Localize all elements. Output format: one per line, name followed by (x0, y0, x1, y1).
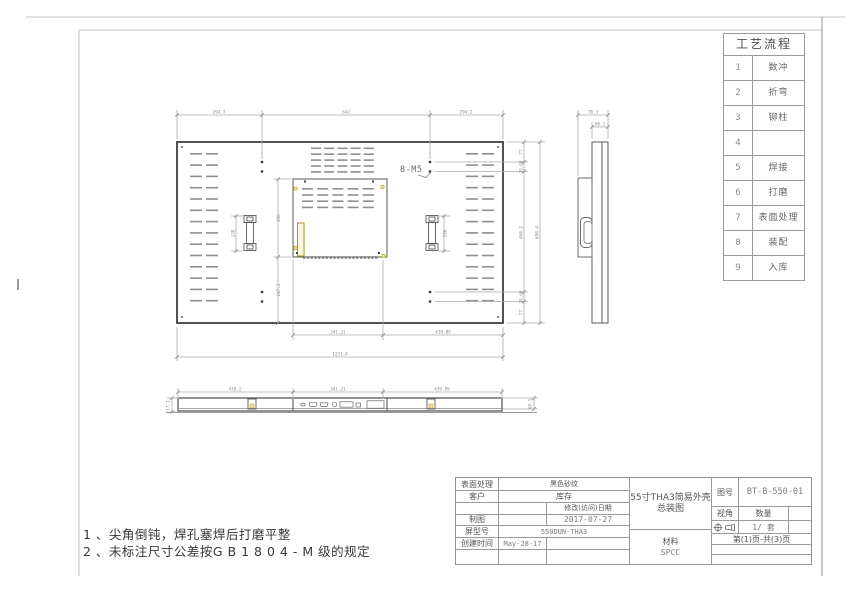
dim-label: 247.2 (276, 283, 282, 296)
process-step-number: 6 (724, 181, 753, 205)
process-step-row: 6打磨 (724, 181, 804, 206)
process-step-name: 打磨 (753, 181, 804, 205)
empty-cell (498, 514, 546, 526)
title-block: 表面处理 黑色砂纹 客户 库存 修改(访问)日期 制图 2017-07-27 屏… (455, 477, 812, 565)
dim-label: 250 (276, 214, 282, 222)
dim-label: 439.89 (434, 387, 450, 393)
handle-bracket-left (244, 216, 256, 251)
dim-label: 77 (519, 310, 525, 316)
process-step-name: 装配 (753, 231, 804, 255)
process-step-row: 8装配 (724, 231, 804, 256)
dim-label: 698.4 (535, 226, 541, 239)
process-step-number: 3 (724, 106, 753, 130)
material-value: SPCC (661, 547, 680, 558)
create-time-label: 创建时间 (456, 537, 498, 549)
process-step-row: 7表面处理 (724, 206, 804, 231)
process-step-row: 1数冲 (724, 56, 804, 81)
process-step-number: 2 (724, 81, 753, 105)
process-step-number: 1 (724, 56, 753, 80)
empty-cell (711, 554, 811, 564)
note-2: 2 、未标注尺寸公差按G B 1 8 0 4 - M 级的规定 (83, 543, 370, 560)
empty-cell (456, 549, 498, 564)
model-label: 屏型号 (456, 525, 498, 537)
dim-label: 39.68 (519, 290, 525, 303)
process-step-name: 数冲 (753, 56, 804, 80)
drawing-title-line1: 55寸THA3简易外壳 (630, 493, 711, 504)
dim-label: 341.21 (330, 330, 346, 336)
dim-label: 294.2 (460, 110, 473, 116)
empty-cell (498, 502, 546, 514)
dim-label: 439.89 (435, 330, 451, 336)
modify-date-label: 修改(访问)日期 (546, 502, 629, 514)
process-step-number: 4 (724, 131, 753, 155)
empty-cell (546, 537, 629, 549)
process-step-row: 5焊接 (724, 156, 804, 181)
m5-holes (261, 161, 431, 303)
process-flow-title: 工艺流程 (724, 34, 804, 56)
process-step-number: 7 (724, 206, 753, 230)
rear-view (177, 142, 503, 323)
empty-cell (498, 549, 546, 564)
dimension-labels: 294.7 642 294.2 341.21 439.89 1231.4 77 … (166, 110, 606, 411)
bottom-view (166, 398, 537, 413)
dim-label: 341.21 (330, 387, 346, 393)
process-step-row: 4 (724, 131, 804, 156)
model-value: 550DUN-THA3 (498, 525, 629, 537)
process-step-name: 入库 (753, 256, 804, 280)
surface-value: 黑色砂纹 (498, 478, 629, 490)
dim-label: 39.68 (519, 160, 525, 173)
dim-label: 78.3 (588, 110, 599, 116)
empty-cell (711, 544, 811, 554)
dim-label: 77 (519, 149, 525, 155)
process-step-name: 表面处理 (753, 206, 804, 230)
empty-cell (546, 549, 629, 564)
quantity-label: 数量 (738, 506, 788, 520)
dim-label: 68.1 (595, 122, 606, 128)
dim-label: 439.2 (229, 387, 242, 393)
process-step-name (753, 131, 804, 155)
draft-date-value: 2017-07-27 (546, 514, 629, 526)
page-number: 第(1)页-共(3)页 (711, 533, 811, 544)
first-angle-projection-icon (713, 522, 737, 533)
empty-cell (456, 502, 498, 514)
surface-label: 表面处理 (456, 478, 498, 490)
side-view (578, 142, 608, 323)
process-step-number: 9 (724, 256, 753, 280)
thread-callout: 8-M5 (400, 165, 422, 175)
dim-label: 128 (231, 229, 237, 237)
dim-label: 17.1 (166, 400, 172, 411)
connector-slot (298, 223, 305, 256)
draft-label: 制图 (456, 514, 498, 526)
process-step-name: 焊接 (753, 156, 804, 180)
view-angle-label: 视角 (711, 506, 738, 520)
customer-value: 库存 (498, 490, 629, 502)
drawing-no-value: BT-B-550-01 (738, 478, 811, 506)
drawing-title: 55寸THA3简易外壳 总装图 (629, 478, 711, 529)
dim-label: 128 (443, 229, 449, 237)
material-label: 材料 (663, 536, 679, 547)
drawing-notes: 1 、尖角倒钝，焊孔塞焊后打磨平整 2 、未标注尺寸公差按G B 1 8 0 4… (83, 526, 370, 560)
dim-label: 294.7 (213, 110, 226, 116)
process-step-row: 2折弯 (724, 81, 804, 106)
customer-label: 客户 (456, 490, 498, 502)
drawing-title-line2: 总装图 (657, 504, 684, 515)
process-step-row: 9入库 (724, 256, 804, 280)
empty-cell (788, 506, 811, 520)
note-1: 1 、尖角倒钝，焊孔塞焊后打磨平整 (83, 526, 370, 543)
projection-symbol (711, 520, 738, 533)
dim-label: 642 (342, 110, 350, 116)
handle-bracket-right (426, 216, 438, 251)
process-step-name: 折弯 (753, 81, 804, 105)
empty-cell (788, 520, 811, 533)
process-step-name: 铆柱 (753, 106, 804, 130)
quantity-value: 1/ 套 (738, 520, 788, 533)
drawing-sheet: 294.7 642 294.2 341.21 439.89 1231.4 77 … (0, 0, 850, 600)
dim-label: 1231.4 (332, 352, 348, 358)
process-step-row: 3铆柱 (724, 106, 804, 131)
dim-label: 68.1 (528, 398, 534, 409)
material-cell: 材料 SPCC (629, 529, 711, 564)
process-flow-table: 工艺流程 1数冲2折弯3铆柱45焊接6打磨7表面处理8装配9入库 (723, 33, 805, 281)
dim-label: 468.2 (519, 226, 525, 239)
process-step-number: 5 (724, 156, 753, 180)
process-step-number: 8 (724, 231, 753, 255)
dimension-lines (167, 110, 610, 414)
connector-glyphs (301, 401, 384, 408)
drawing-no-label: 图号 (711, 478, 738, 506)
create-time-value: May-28-17 (498, 537, 546, 549)
